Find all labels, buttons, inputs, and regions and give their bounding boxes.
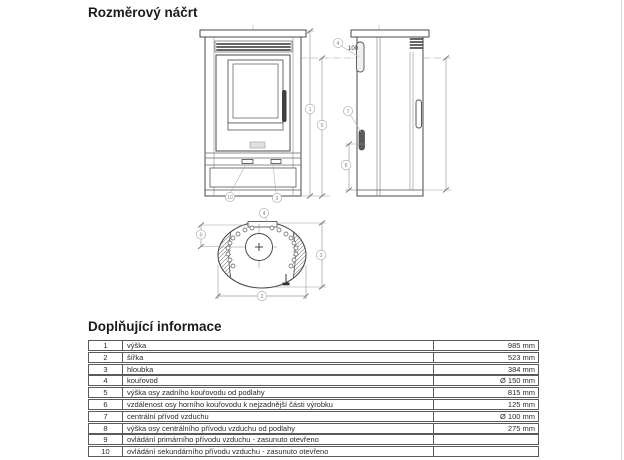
row-desc-cell: ovládání primárního přívodu vzduchu - za… [123, 435, 434, 444]
row-desc-cell: centrální přívod vzduchu [123, 412, 434, 421]
row-desc-cell: výška [123, 341, 434, 350]
callout-2: 2 [257, 291, 267, 301]
row-value-cell: 384 mm [434, 365, 538, 374]
callout-1: 1 [305, 104, 315, 114]
table-row: 2 šířka 523 mm [88, 352, 539, 363]
table-row: 10 ovládání sekundárního přívodu vzduchu… [88, 446, 539, 457]
row-number-cell: 4 [89, 376, 123, 385]
row-desc-cell: výška osy zadního kouřovodu od podlahy [123, 388, 434, 397]
row-value-cell [434, 447, 538, 456]
row-number-cell: 9 [89, 435, 123, 444]
page-title: Rozměrový náčrt [88, 5, 198, 20]
row-value-cell: 815 mm [434, 388, 538, 397]
row-value-cell: Ø 150 mm [434, 376, 538, 385]
front-door [216, 55, 290, 151]
front-vent-grille-icon [215, 41, 292, 52]
central-air-inlet-icon [359, 130, 365, 150]
svg-text:7: 7 [346, 109, 349, 115]
svg-text:1: 1 [308, 107, 311, 113]
row-desc-cell: šířka [123, 353, 434, 362]
row-number-cell: 6 [89, 400, 123, 409]
row-number-cell: 1 [89, 341, 123, 350]
door-handle-icon [282, 90, 287, 122]
info-section-title: Doplňující informace [88, 319, 222, 334]
front-view: 10 9 [200, 25, 306, 203]
row-number-cell: 2 [89, 353, 123, 362]
table-row: 6 vzdálenost osy horního kouřovodu k nej… [88, 399, 539, 410]
callout-9: 9 [272, 193, 281, 202]
callout-4-top: 4 [259, 208, 268, 217]
row-desc-cell: vzdálenost osy horního kouřovodu k nejza… [123, 400, 434, 409]
row-desc-cell: výška osy centrálního přívodu vzduchu od… [123, 424, 434, 433]
row-value-cell: 275 mm [434, 424, 538, 433]
row-value-cell: 125 mm [434, 400, 538, 409]
callout-7: 7 [343, 106, 352, 115]
row-value-cell: 523 mm [434, 353, 538, 362]
svg-text:8: 8 [344, 163, 347, 169]
side-handle-icon [416, 100, 422, 128]
svg-text:10: 10 [227, 195, 233, 201]
dimension-drawing: 10 9 1 5 [180, 25, 480, 310]
row-number-cell: 8 [89, 424, 123, 433]
page-edge-divider [621, 0, 622, 460]
svg-text:2: 2 [260, 294, 263, 300]
table-row: 7 centrální přívod vzduchu Ø 100 mm [88, 411, 539, 422]
table-row: 8 výška osy centrálního přívodu vzduchu … [88, 423, 539, 434]
side-view: 100 4 7 [333, 25, 429, 196]
svg-text:9: 9 [276, 196, 279, 202]
table-row: 4 kouřovod Ø 150 mm [88, 375, 539, 386]
dimension-height: 1 [301, 29, 330, 199]
row-value-cell: Ø 100 mm [434, 412, 538, 421]
row-desc-cell: hloubka [123, 365, 434, 374]
callout-3: 3 [316, 250, 326, 260]
top-view: 4 [216, 208, 308, 289]
row-number-cell: 10 [89, 447, 123, 456]
badge-plate-icon [250, 142, 265, 148]
table-row: 1 výška 985 mm [88, 340, 539, 351]
right-projection-line [423, 56, 451, 193]
callout-8: 8 [341, 160, 351, 170]
svg-text:4: 4 [336, 41, 339, 47]
row-number-cell: 5 [89, 388, 123, 397]
table-row: 9 ovládání primárního přívodu vzduchu - … [88, 434, 539, 445]
row-desc-cell: kouřovod [123, 376, 434, 385]
svg-text:3: 3 [319, 253, 322, 259]
secondary-air-slider-icon [271, 160, 281, 164]
row-value-cell [434, 435, 538, 444]
page: Rozměrový náčrt [0, 0, 624, 460]
callout-10: 10 [225, 192, 234, 201]
svg-text:5: 5 [320, 123, 323, 129]
row-desc-cell: ovládání sekundárního přívodu vzduchu - … [123, 447, 434, 456]
row-value-cell: 985 mm [434, 341, 538, 350]
primary-air-slider-icon [242, 160, 253, 164]
table-row: 5 výška osy zadního kouřovodu od podlahy… [88, 387, 539, 398]
row-number-cell: 3 [89, 365, 123, 374]
callout-5: 5 [317, 120, 327, 130]
svg-text:6: 6 [199, 233, 202, 239]
info-table: 1 výška 985 mm 2 šířka 523 mm 3 hloubka … [88, 340, 539, 458]
callout-4-side: 4 [333, 38, 342, 47]
table-row: 3 hloubka 384 mm [88, 364, 539, 375]
row-number-cell: 7 [89, 412, 123, 421]
callout-6: 6 [196, 230, 205, 239]
svg-text:4: 4 [262, 211, 265, 217]
